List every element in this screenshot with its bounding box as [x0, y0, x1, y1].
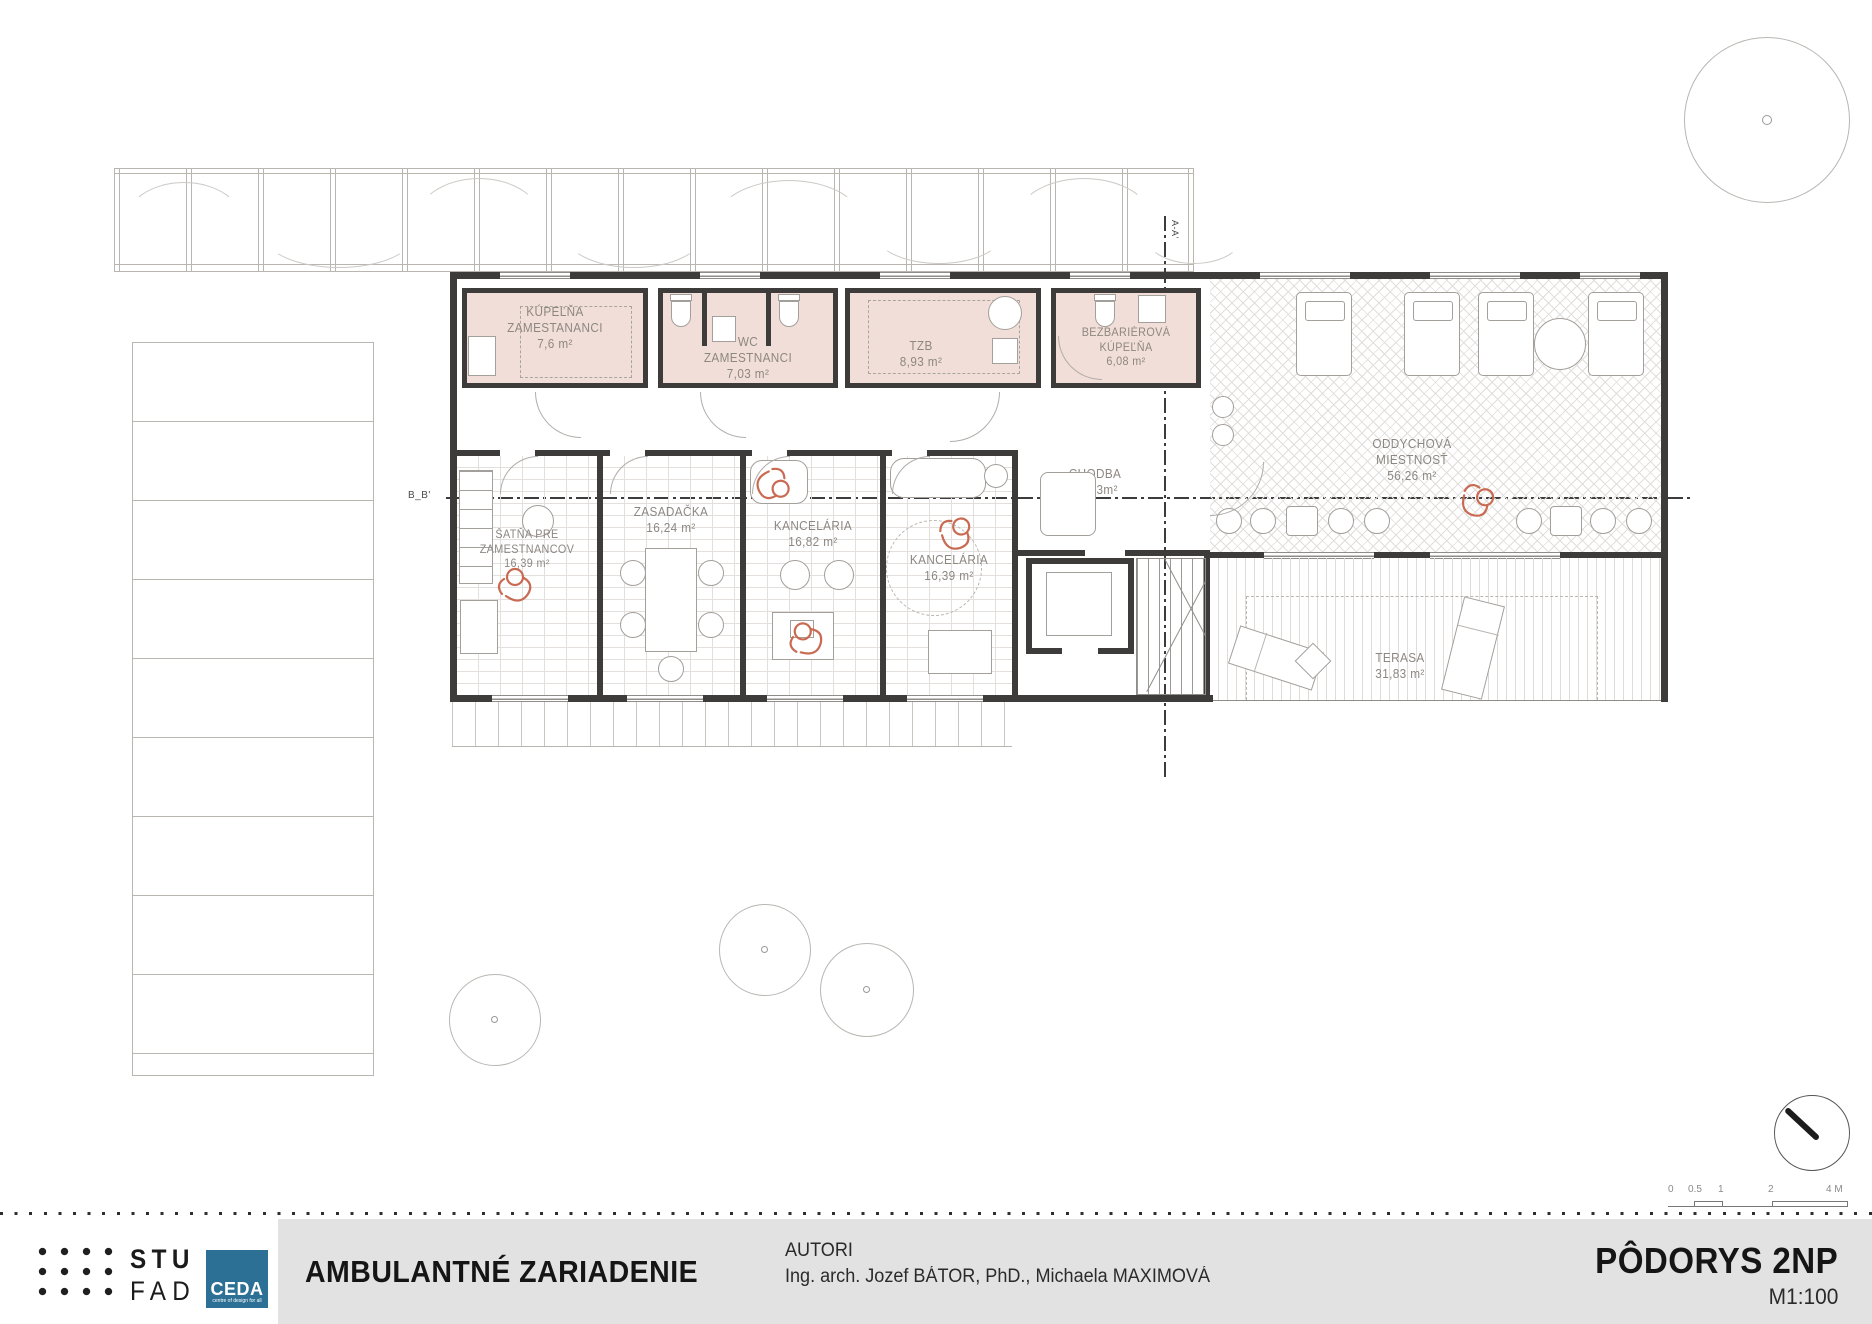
bed: [1478, 292, 1534, 376]
room-label-kancelaria-1: KANCELÁRIA 16,82 m²: [752, 518, 874, 550]
window: [767, 695, 843, 702]
toilet: [779, 301, 799, 327]
section-label-bb: B_B': [408, 490, 431, 501]
door-swing: [700, 392, 746, 438]
chair: [698, 612, 724, 638]
plant-arc: [124, 182, 244, 266]
drawing-title: PÔDORYS 2NP: [1595, 1240, 1838, 1282]
pillow: [1487, 301, 1527, 321]
room-name: KÚPEĽŇA ZAMESTANANCI: [475, 304, 635, 336]
plant-arc: [564, 198, 704, 268]
window: [880, 272, 950, 279]
desk: [928, 630, 992, 674]
side-table: [984, 464, 1008, 488]
stairs: [1136, 558, 1206, 695]
room-label-zasadacka: ZASADAČKA 16,24 m²: [610, 504, 732, 536]
chair: [1626, 508, 1652, 534]
room-area: 7,03 m²: [669, 366, 827, 382]
parking-area: [132, 342, 374, 1076]
window: [1430, 272, 1520, 279]
side-table: [1550, 506, 1582, 536]
pergola-chord: [114, 173, 1194, 174]
project-title: AMBULANTNÉ ZARIADENIE: [305, 1254, 698, 1290]
drawing-scale: M1:100: [1768, 1284, 1838, 1310]
plant-arc: [414, 178, 544, 270]
chair: [1516, 508, 1542, 534]
authors-names: Ing. arch. Jozef BÁTOR, PhD., Michaela M…: [785, 1266, 1210, 1288]
footer-dotted-separator: [0, 1212, 1872, 1215]
elevator-car: [1046, 572, 1112, 636]
interior-wall: [1125, 550, 1210, 556]
exterior-wall-right: [1661, 272, 1668, 702]
room-name: ODDYCHOVÁ MIESTNOSŤ: [1327, 436, 1496, 468]
boiler: [988, 296, 1022, 330]
pergola: [114, 168, 1194, 272]
toilet: [1094, 294, 1116, 301]
scale-bar-step: [1772, 1201, 1848, 1202]
pillow: [1597, 301, 1637, 321]
window: [1580, 272, 1640, 279]
scale-tick: 4 M: [1826, 1184, 1843, 1195]
pergola-post: [258, 168, 264, 272]
pergola-post: [114, 168, 120, 272]
chair: [698, 560, 724, 586]
chair: [824, 560, 854, 590]
tree-trunk: [491, 1016, 498, 1023]
window: [500, 272, 570, 279]
room-area: 7,6 m²: [475, 336, 635, 352]
elevator-door: [1062, 648, 1098, 656]
chair: [620, 612, 646, 638]
room-area: 31,83 m²: [1334, 666, 1466, 682]
plant-arc: [874, 200, 1004, 264]
bed: [1296, 292, 1352, 376]
chair: [1590, 508, 1616, 534]
scale-tick: 0: [1668, 1184, 1674, 1195]
sink: [1138, 295, 1166, 323]
wheelchair-user-figure: [492, 560, 538, 607]
scale-bar-tick: [1772, 1201, 1773, 1207]
room-name: TERASA: [1334, 650, 1466, 666]
plant-arc: [714, 180, 864, 268]
tree-trunk: [1762, 115, 1772, 125]
door-swing: [950, 392, 1000, 442]
room-area: 16,24 m²: [610, 520, 732, 536]
window: [1260, 272, 1350, 279]
chair: [1250, 508, 1276, 534]
stair-break-line: [1164, 559, 1206, 692]
bed: [1404, 292, 1460, 376]
round-table: [1534, 318, 1586, 370]
cabinet: [460, 600, 498, 654]
room-label-kancelaria-2: KANCELÁRIA 16,39 m²: [892, 552, 1007, 584]
meeting-table: [645, 548, 697, 652]
scale-tick: 0.5: [1688, 1184, 1702, 1195]
window: [627, 695, 703, 702]
scale-bar: 0 0.5 1 2 4 M: [1668, 1184, 1850, 1212]
scale-bar-step: [1694, 1201, 1722, 1202]
scale-bar-tick: [1722, 1201, 1723, 1207]
floor-plan-sheet: A-A' B_B' KÚPEĽŇA ZAMESTANANCI 7,6 m²: [0, 0, 1872, 1324]
scale-bar-line: [1668, 1206, 1848, 1207]
room-area: 16,82 m²: [752, 534, 874, 550]
ceda-logo: CEDA centre of design for all: [206, 1250, 268, 1308]
pergola-chord: [114, 168, 1194, 169]
chair: [658, 656, 684, 682]
authors-label: AUTORI: [785, 1240, 853, 1262]
room-name: ŠATŇA PRE ZAMESTNANCOV: [464, 528, 590, 557]
room-area: 16,39 m²: [892, 568, 1007, 584]
chair: [1328, 508, 1354, 534]
window: [907, 695, 983, 702]
interior-wall: [1012, 450, 1018, 695]
pillow: [1413, 301, 1453, 321]
scale-bar-tick: [1847, 1201, 1848, 1207]
section-label-aa: A-A': [1170, 220, 1180, 239]
wall-basin: [1212, 424, 1234, 446]
stu-logo-text-line2: FAD: [130, 1276, 196, 1307]
wall-basin: [1212, 396, 1234, 418]
toilet: [670, 294, 692, 301]
terrace-edge: [1213, 700, 1661, 701]
stu-logo-dots: [38, 1247, 124, 1305]
exterior-wall-left: [450, 272, 457, 702]
plant-arc: [1014, 178, 1154, 268]
lounge-chair-fold: [1458, 625, 1499, 636]
lounge-chair-fold: [1254, 633, 1267, 671]
room-area: 8,93 m²: [860, 354, 982, 370]
room-name: WC ZAMESTNANCI: [669, 334, 827, 366]
room-name: TZB: [860, 338, 982, 354]
plant-arc: [264, 202, 414, 268]
bed: [1588, 292, 1644, 376]
chair: [1364, 508, 1390, 534]
pillow: [1305, 301, 1345, 321]
toilet: [1095, 301, 1115, 327]
room-label-terasa: TERASA 31,83 m²: [1334, 650, 1466, 682]
scale-tick: 1: [1718, 1184, 1724, 1195]
toilet: [778, 294, 800, 301]
ceda-logo-subtext: centre of design for all: [212, 1298, 261, 1305]
scale-bar-tick: [1694, 1201, 1695, 1207]
stu-logo-text-line1: STU: [130, 1244, 195, 1275]
door-swing: [535, 392, 581, 438]
window: [700, 272, 760, 279]
chair: [780, 560, 810, 590]
window: [1070, 272, 1130, 279]
window: [492, 695, 568, 702]
room-name: ZASADAČKA: [610, 504, 732, 520]
tree-trunk: [863, 986, 870, 993]
ceda-logo-text: CEDA: [210, 1280, 263, 1298]
equipment-box: [992, 338, 1018, 364]
scale-tick: 2: [1768, 1184, 1774, 1195]
plant-arc: [1144, 204, 1244, 264]
pergola-post: [546, 168, 552, 272]
interior-wall: [1012, 550, 1085, 556]
side-table: [1286, 506, 1318, 536]
room-label-wc: WC ZAMESTNANCI 7,03 m²: [669, 334, 827, 382]
tree-trunk: [761, 946, 768, 953]
paving-strip: [452, 702, 1012, 747]
room-label-tzb: TZB 8,93 m²: [860, 338, 982, 370]
toilet: [671, 301, 691, 327]
room-label-kupelna: KÚPEĽŇA ZAMESTANANCI 7,6 m²: [475, 304, 635, 352]
bench: [1040, 472, 1096, 536]
chair: [620, 560, 646, 586]
room-name: KANCELÁRIA: [752, 518, 874, 534]
